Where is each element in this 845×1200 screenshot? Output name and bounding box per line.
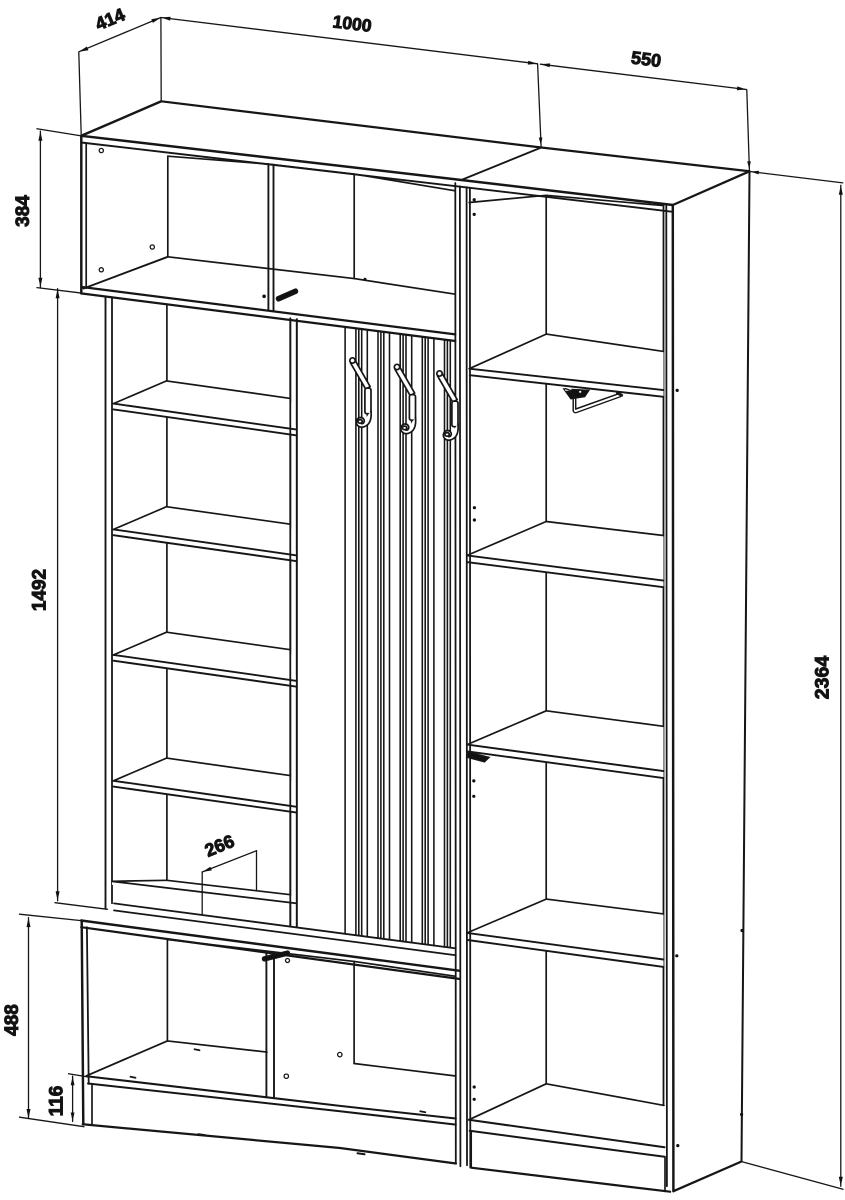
svg-text:384: 384 (13, 195, 34, 227)
svg-text:488: 488 (2, 1004, 23, 1036)
svg-text:550: 550 (630, 48, 662, 72)
svg-text:2364: 2364 (812, 656, 834, 700)
svg-text:1492: 1492 (30, 569, 51, 611)
svg-text:116: 116 (46, 1086, 67, 1117)
